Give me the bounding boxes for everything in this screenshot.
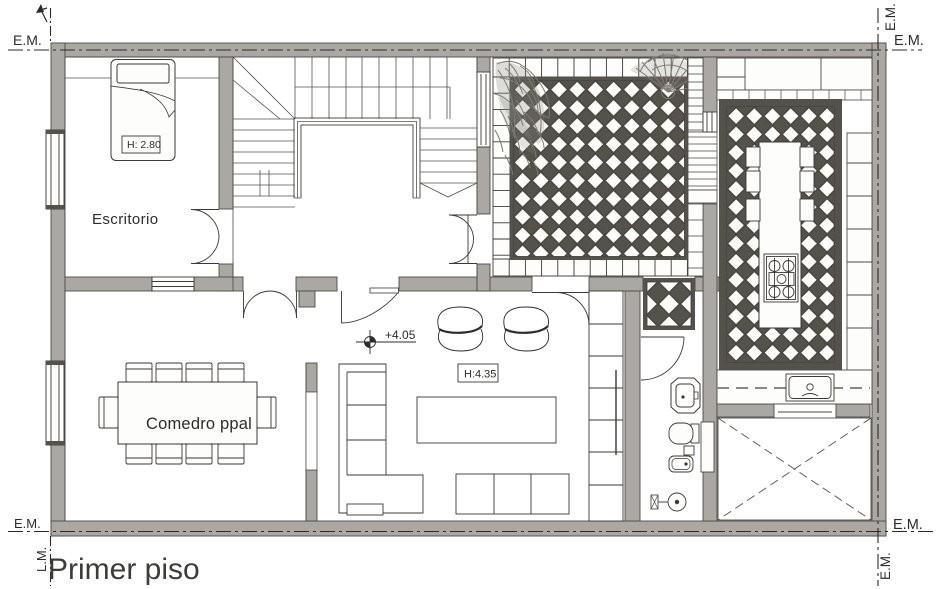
svg-text:Escritorio: Escritorio bbox=[92, 211, 159, 228]
svg-text:E.M.: E.M. bbox=[13, 32, 42, 48]
svg-text:E.M.: E.M. bbox=[894, 33, 924, 49]
svg-text:E.M.: E.M. bbox=[893, 517, 923, 533]
svg-text:+4.05: +4.05 bbox=[385, 328, 416, 342]
svg-text:Primer piso: Primer piso bbox=[48, 553, 200, 586]
svg-text:Comedro ppal: Comedro ppal bbox=[146, 415, 252, 433]
svg-text:E.M.: E.M. bbox=[883, 3, 898, 31]
svg-text:L.M.: L.M. bbox=[34, 547, 49, 572]
svg-text:E.M.: E.M. bbox=[14, 516, 41, 531]
svg-text:H:4.35: H:4.35 bbox=[464, 369, 496, 381]
svg-text:H: 2.80: H: 2.80 bbox=[127, 139, 161, 151]
svg-text:E.M.: E.M. bbox=[878, 552, 893, 580]
